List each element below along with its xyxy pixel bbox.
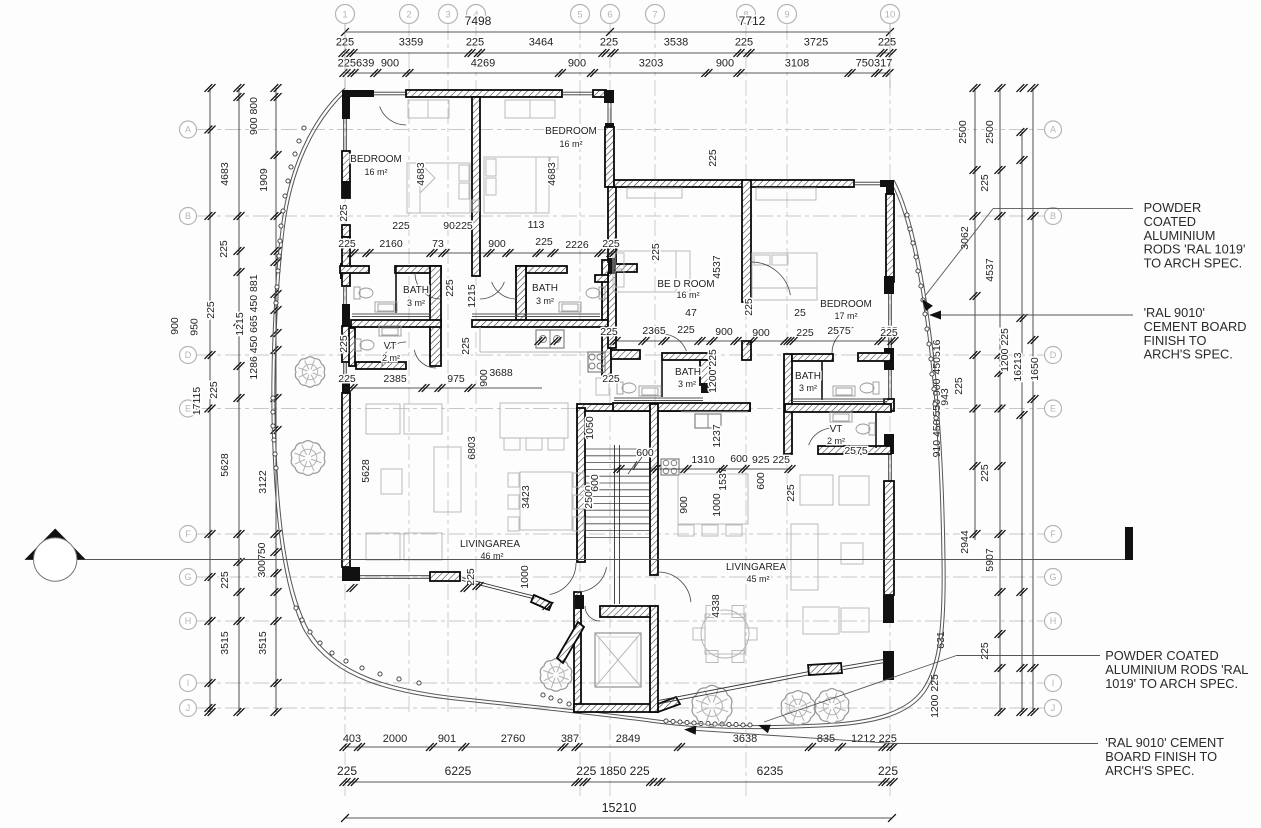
svg-text:5628: 5628 (219, 453, 231, 477)
svg-text:600: 600 (730, 453, 748, 465)
svg-text:2500: 2500 (957, 120, 969, 144)
svg-text:17115: 17115 (191, 387, 203, 416)
svg-text:3538: 3538 (664, 37, 688, 49)
svg-text:BEDROOM: BEDROOM (350, 154, 402, 165)
svg-text:4683: 4683 (219, 162, 231, 186)
svg-text:6: 6 (607, 10, 612, 21)
svg-text:225639: 225639 (338, 58, 375, 70)
svg-text:225: 225 (979, 642, 991, 660)
svg-text:387: 387 (561, 733, 579, 745)
svg-text:5628: 5628 (360, 459, 372, 483)
svg-text:225: 225 (677, 324, 695, 336)
svg-text:I: I (187, 678, 190, 688)
svg-text:BEDROOM: BEDROOM (820, 299, 872, 310)
svg-text:BATH: BATH (675, 367, 701, 378)
svg-text:'RAL 9010' CEMENT: 'RAL 9010' CEMENT (1105, 735, 1224, 750)
svg-text:225: 225 (600, 326, 618, 338)
svg-text:225: 225 (218, 240, 230, 258)
svg-text:2760: 2760 (501, 733, 525, 745)
svg-text:3 m²: 3 m² (407, 298, 425, 308)
svg-text:FINISH TO: FINISH TO (1144, 333, 1207, 348)
svg-text:4537: 4537 (984, 258, 996, 282)
svg-text:4683: 4683 (546, 162, 558, 186)
svg-text:ARCH'S SPEC.: ARCH'S SPEC. (1105, 763, 1194, 778)
svg-text:2 m²: 2 m² (827, 436, 845, 446)
svg-text:I: I (1052, 678, 1055, 688)
svg-text:1200 225: 1200 225 (929, 674, 941, 718)
svg-text:225: 225 (953, 377, 965, 395)
svg-text:A: A (185, 125, 191, 135)
svg-text:1286 450 665 450 881: 1286 450 665 450 881 (248, 274, 260, 379)
svg-text:225: 225 (466, 37, 484, 49)
svg-text:901: 901 (438, 733, 456, 745)
svg-text:2385: 2385 (383, 373, 407, 385)
svg-text:900: 900 (488, 238, 506, 250)
svg-text:VT: VT (830, 424, 843, 435)
svg-text:225 1850 225: 225 1850 225 (576, 764, 650, 778)
svg-text:G: G (1049, 572, 1056, 582)
svg-text:15210: 15210 (602, 801, 637, 815)
svg-text:16213: 16213 (1012, 352, 1024, 381)
svg-text:113: 113 (528, 219, 545, 231)
svg-text:E: E (1050, 404, 1056, 414)
svg-text:900: 900 (169, 317, 181, 335)
svg-text:225: 225 (455, 220, 473, 232)
svg-text:225: 225 (337, 764, 357, 778)
svg-text:TO ARCH SPEC.: TO ARCH SPEC. (1144, 256, 1243, 271)
svg-text:900: 900 (678, 496, 690, 514)
svg-text:1050: 1050 (584, 416, 596, 440)
svg-text:16 m²: 16 m² (559, 139, 582, 149)
svg-text:BATH: BATH (403, 285, 429, 296)
svg-text:LIVINGAREA: LIVINGAREA (726, 562, 786, 573)
svg-text:900: 900 (381, 58, 399, 70)
svg-text:1650: 1650 (1029, 357, 1041, 381)
svg-text:3688: 3688 (489, 367, 513, 379)
svg-text:POWDER COATED: POWDER COATED (1105, 648, 1219, 663)
svg-text:600: 600 (636, 447, 654, 459)
svg-text:POWDER: POWDER (1144, 200, 1202, 215)
svg-text:3 m²: 3 m² (678, 379, 696, 389)
svg-text:900: 900 (716, 58, 734, 70)
svg-text:ALUMINIUM RODS 'RAL: ALUMINIUM RODS 'RAL (1105, 662, 1248, 677)
svg-text:225: 225 (338, 204, 350, 222)
svg-text:2: 2 (406, 10, 411, 21)
svg-text:F: F (1050, 529, 1056, 539)
svg-text:2226: 2226 (565, 239, 589, 251)
svg-text:COATED: COATED (1144, 214, 1196, 229)
svg-text:1215: 1215 (466, 284, 478, 308)
svg-text:1019' TO ARCH SPEC.: 1019' TO ARCH SPEC. (1105, 676, 1238, 691)
svg-text:225: 225 (650, 243, 662, 261)
svg-text:900: 900 (752, 327, 770, 339)
svg-text:1215: 1215 (234, 312, 246, 336)
svg-text:BOARD FINISH TO: BOARD FINISH TO (1105, 749, 1217, 764)
svg-text:BATH: BATH (795, 371, 821, 382)
svg-text:3515: 3515 (219, 631, 231, 655)
svg-text:2365: 2365 (642, 325, 666, 337)
svg-text:225: 225 (878, 37, 896, 49)
svg-text:225: 225 (535, 236, 553, 248)
svg-text:3122: 3122 (257, 470, 269, 494)
svg-text:3 m²: 3 m² (536, 296, 554, 306)
svg-text:225: 225 (460, 337, 472, 355)
svg-text:B: B (185, 211, 191, 221)
svg-text:2000: 2000 (383, 733, 407, 745)
svg-text:900: 900 (715, 326, 733, 338)
svg-text:225: 225 (205, 301, 217, 319)
svg-text:225: 225 (208, 381, 220, 399)
svg-text:4683: 4683 (415, 162, 427, 186)
svg-text:H: H (185, 616, 192, 626)
svg-text:2 m²: 2 m² (382, 353, 400, 363)
svg-text:J: J (186, 703, 191, 713)
svg-text:975: 975 (447, 373, 465, 385)
svg-text:225: 225 (444, 279, 456, 297)
svg-text:225: 225 (338, 238, 356, 250)
svg-text:450516: 450516 (931, 339, 943, 374)
svg-text:'RAL 9010': 'RAL 9010' (1144, 305, 1205, 320)
svg-text:ARCH'S SPEC.: ARCH'S SPEC. (1144, 347, 1233, 362)
svg-text:3: 3 (445, 10, 450, 21)
svg-text:J: J (1051, 703, 1056, 713)
svg-text:3515: 3515 (257, 631, 269, 655)
svg-text:225: 225 (338, 373, 356, 385)
svg-text:3108: 3108 (785, 58, 809, 70)
svg-text:25: 25 (794, 307, 806, 319)
svg-text:3062: 3062 (959, 226, 971, 250)
svg-text:LIVINGAREA: LIVINGAREA (460, 539, 520, 550)
svg-text:1200 225: 1200 225 (999, 328, 1011, 372)
svg-text:16 m²: 16 m² (676, 290, 699, 300)
svg-text:B: B (1050, 211, 1056, 221)
svg-text:4269: 4269 (471, 58, 495, 70)
svg-text:3423: 3423 (520, 485, 532, 509)
svg-text:10: 10 (885, 10, 896, 21)
svg-text:VT: VT (384, 341, 397, 352)
svg-text:950: 950 (189, 318, 201, 336)
svg-text:225: 225 (979, 174, 991, 192)
svg-text:CEMENT BOARD: CEMENT BOARD (1144, 319, 1247, 334)
svg-text:2500: 2500 (984, 120, 996, 144)
svg-text:225: 225 (743, 298, 755, 316)
svg-text:6803: 6803 (466, 436, 478, 460)
svg-text:225: 225 (602, 238, 620, 250)
svg-text:7712: 7712 (739, 14, 766, 28)
svg-text:2849: 2849 (616, 733, 640, 745)
svg-text:6235: 6235 (757, 764, 784, 778)
svg-text:1237: 1237 (711, 424, 723, 448)
svg-text:7498: 7498 (465, 14, 492, 28)
svg-text:900: 900 (478, 369, 490, 387)
svg-text:47: 47 (685, 307, 697, 319)
svg-text:3359: 3359 (399, 37, 423, 49)
svg-text:900 800: 900 800 (248, 97, 260, 135)
svg-text:2944: 2944 (959, 530, 971, 554)
svg-text:225: 225 (338, 335, 350, 353)
svg-text:4537: 4537 (711, 255, 723, 279)
svg-text:225: 225 (392, 220, 410, 232)
svg-text:900: 900 (568, 58, 586, 70)
svg-text:BATH: BATH (532, 283, 558, 294)
svg-text:17 m²: 17 m² (834, 311, 857, 321)
svg-text:BE D ROOM: BE D ROOM (657, 279, 714, 290)
svg-text:3 m²: 3 m² (799, 383, 817, 393)
svg-text:600: 600 (589, 474, 601, 492)
svg-text:D: D (185, 350, 192, 360)
svg-text:3725: 3725 (804, 37, 828, 49)
svg-text:225: 225 (796, 327, 814, 339)
svg-text:225: 225 (465, 568, 477, 586)
svg-text:225: 225 (219, 571, 231, 589)
svg-text:1000: 1000 (711, 493, 723, 517)
svg-text:1000: 1000 (519, 565, 531, 589)
svg-text:H: H (1050, 616, 1057, 626)
svg-text:A: A (1050, 125, 1056, 135)
svg-text:ALUMINIUM: ALUMINIUM (1144, 228, 1216, 243)
svg-text:9: 9 (784, 10, 789, 21)
svg-text:7: 7 (652, 10, 657, 21)
svg-text:925 225: 925 225 (752, 454, 790, 466)
svg-text:1: 1 (342, 10, 347, 21)
svg-text:45 m²: 45 m² (746, 574, 769, 584)
svg-text:600: 600 (755, 472, 767, 490)
svg-text:1200 225: 1200 225 (707, 349, 719, 393)
svg-text:3203: 3203 (639, 58, 663, 70)
svg-text:225: 225 (602, 373, 620, 385)
svg-text:225: 225 (735, 37, 753, 49)
svg-text:225: 225 (979, 464, 991, 482)
svg-text:6225: 6225 (445, 764, 472, 778)
svg-text:2575: 2575 (844, 445, 868, 457)
svg-text:F: F (185, 529, 191, 539)
svg-text:3464: 3464 (529, 37, 553, 49)
svg-text:225: 225 (600, 37, 618, 49)
svg-text:225: 225 (878, 764, 898, 778)
svg-text:D: D (1050, 350, 1057, 360)
svg-text:403: 403 (343, 733, 361, 745)
svg-text:RODS 'RAL 1019': RODS 'RAL 1019' (1144, 242, 1246, 257)
svg-text:BEDROOM: BEDROOM (545, 126, 597, 137)
svg-text:2160: 2160 (379, 238, 403, 250)
svg-text:1310: 1310 (691, 454, 715, 466)
svg-text:3638: 3638 (733, 733, 757, 745)
svg-text:5: 5 (577, 10, 582, 21)
svg-text:225: 225 (707, 149, 719, 167)
svg-text:225: 225 (785, 484, 797, 502)
svg-text:4338: 4338 (710, 594, 722, 618)
svg-text:750317: 750317 (856, 58, 893, 70)
svg-text:2575: 2575 (827, 325, 851, 337)
svg-text:16 m²: 16 m² (364, 167, 387, 177)
svg-text:G: G (184, 572, 191, 582)
svg-text:1909: 1909 (258, 168, 270, 192)
svg-text:73: 73 (432, 238, 444, 250)
